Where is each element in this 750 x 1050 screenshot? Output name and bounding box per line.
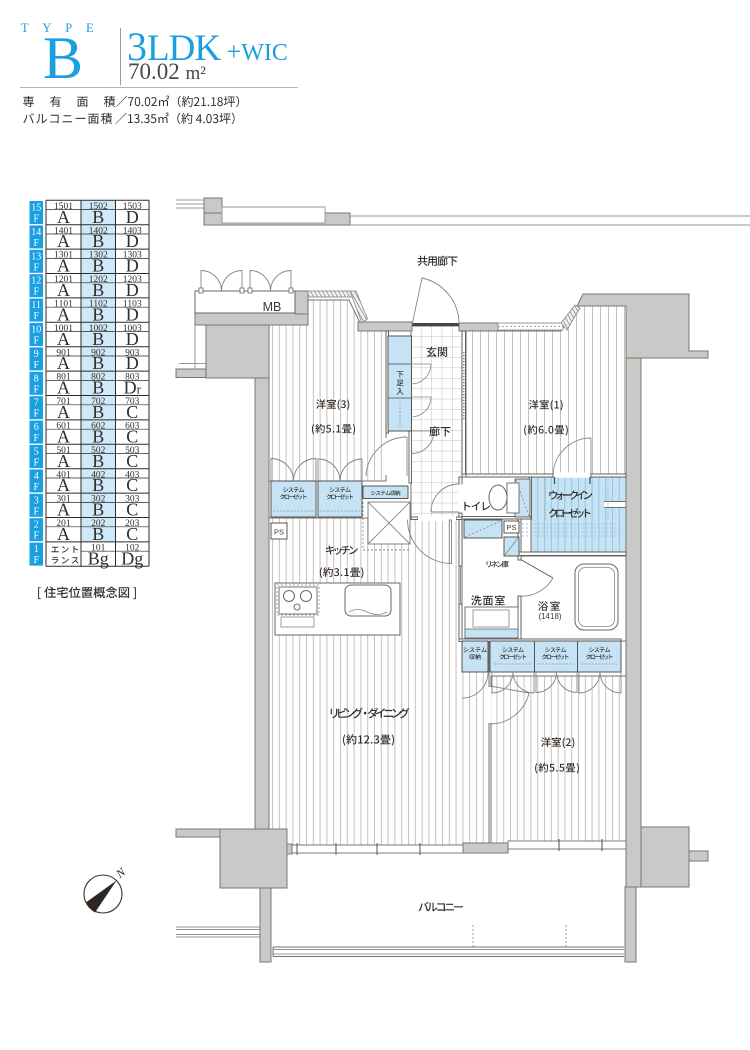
svg-text:F: F [33, 214, 39, 225]
svg-text:F: F [33, 482, 39, 493]
svg-text:F: F [33, 409, 39, 420]
svg-text:PS: PS [506, 523, 516, 532]
svg-text:F: F [33, 384, 39, 395]
svg-text:F: F [33, 555, 39, 566]
svg-text:F: F [33, 238, 39, 249]
svg-text:10: 10 [31, 325, 41, 336]
svg-text:F: F [33, 506, 39, 517]
svg-text:(1418): (1418) [538, 612, 561, 621]
svg-text:F: F [33, 531, 39, 542]
svg-text:MB: MB [263, 300, 282, 314]
svg-text:14: 14 [31, 227, 41, 238]
svg-text:F: F [33, 336, 39, 347]
svg-text:6: 6 [34, 422, 39, 433]
svg-text:4: 4 [34, 471, 39, 482]
svg-text:13: 13 [31, 251, 41, 262]
svg-text:F: F [33, 262, 39, 273]
svg-text:F: F [33, 311, 39, 322]
svg-text:11: 11 [31, 300, 41, 311]
svg-text:B: B [43, 25, 83, 91]
svg-text:PS: PS [274, 528, 284, 537]
svg-text:7: 7 [34, 398, 39, 409]
svg-text:F: F [33, 458, 39, 469]
svg-text:3: 3 [34, 495, 39, 506]
svg-text:70.02 m²: 70.02 m² [128, 59, 206, 84]
svg-text:1: 1 [34, 544, 39, 555]
svg-text:2: 2 [34, 520, 39, 531]
svg-text:F: F [33, 287, 39, 298]
svg-text:15: 15 [31, 203, 41, 214]
svg-text:F: F [33, 360, 39, 371]
svg-text:9: 9 [34, 349, 39, 360]
svg-text:5: 5 [34, 447, 39, 458]
svg-text:F: F [33, 433, 39, 444]
svg-text:8: 8 [34, 373, 39, 384]
svg-text:12: 12 [31, 276, 41, 287]
